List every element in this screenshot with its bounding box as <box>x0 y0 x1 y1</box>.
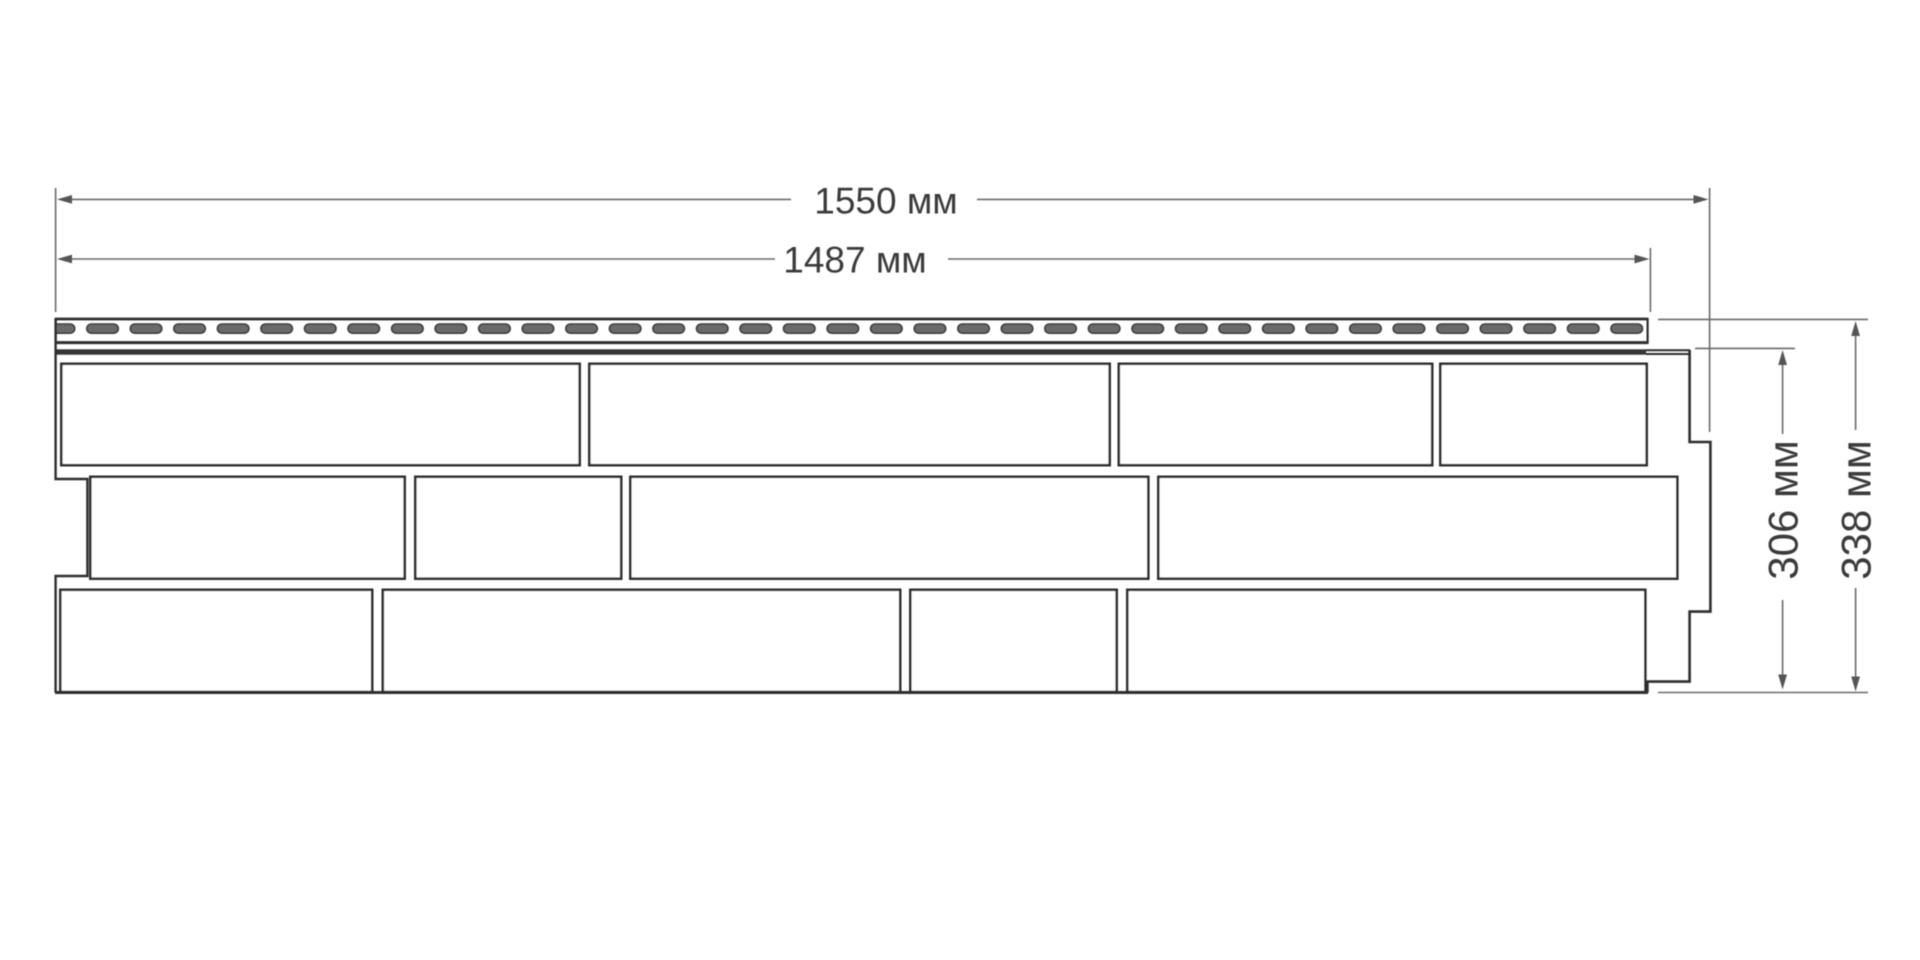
svg-text:306 мм: 306 мм <box>1760 440 1807 580</box>
svg-text:1487 мм: 1487 мм <box>783 239 926 280</box>
svg-text:1550 мм: 1550 мм <box>814 180 957 221</box>
svg-text:338 мм: 338 мм <box>1833 440 1880 580</box>
